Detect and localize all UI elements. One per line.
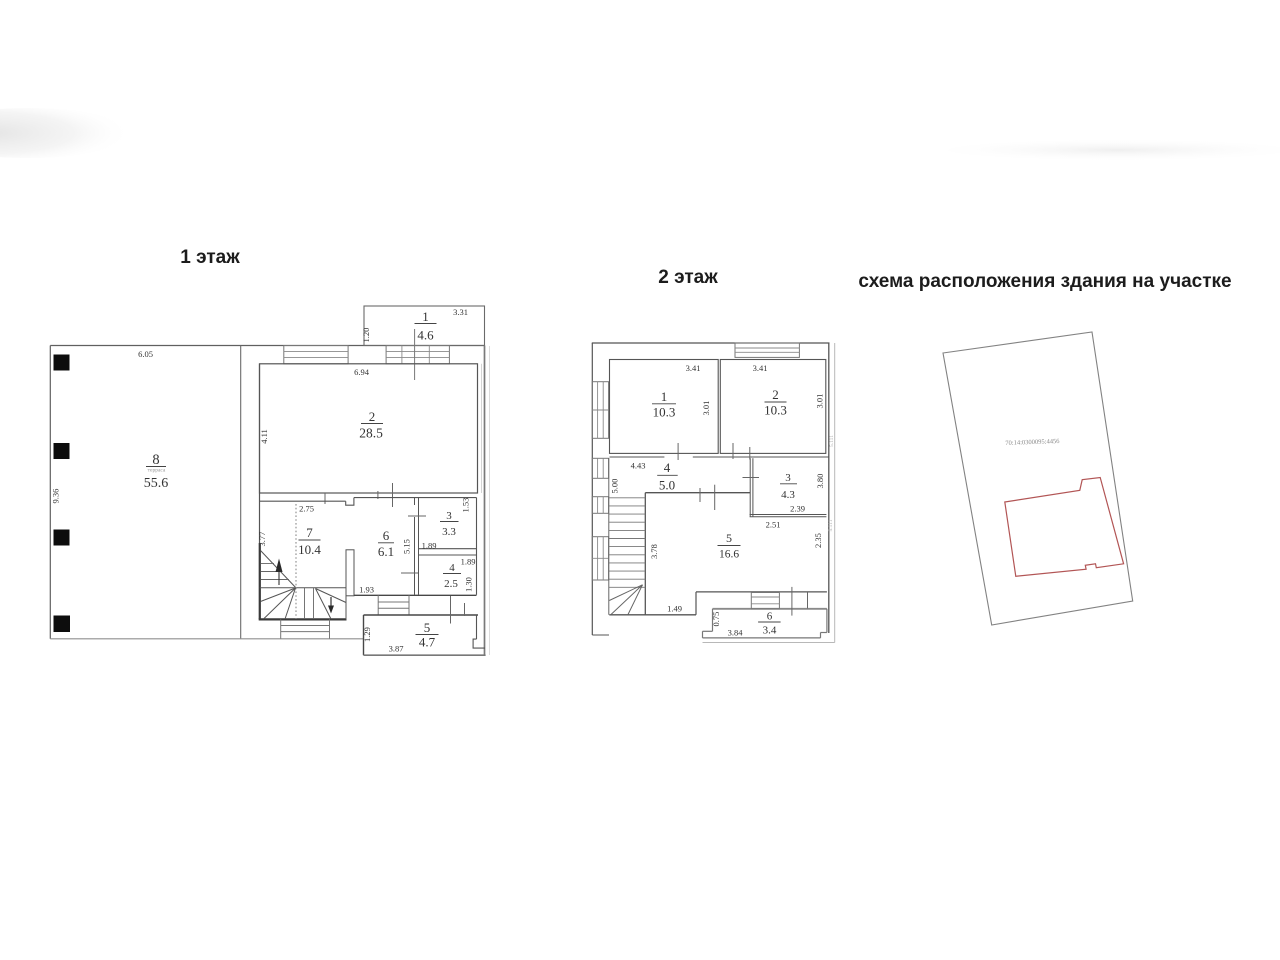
svg-text:2.39: 2.39 [790,504,805,514]
svg-text:1.30: 1.30 [464,577,474,592]
svg-text:1.20: 1.20 [361,328,371,343]
svg-text:1.53: 1.53 [461,498,471,513]
svg-text:3.3: 3.3 [442,526,456,538]
svg-text:1: 1 [422,309,429,324]
svg-text:1.29: 1.29 [362,627,372,642]
svg-text:3.84: 3.84 [728,628,744,638]
svg-text:1.89: 1.89 [461,557,476,567]
svg-text:6: 6 [383,528,390,543]
svg-text:6.1: 6.1 [378,544,394,559]
svg-text:2.35: 2.35 [813,533,823,548]
svg-text:3.41: 3.41 [686,363,701,373]
svg-text:3.87: 3.87 [389,644,404,654]
svg-text:3.31: 3.31 [453,307,468,317]
svg-text:4.43: 4.43 [631,461,646,471]
svg-text:схема расположения здания на у: схема расположения здания на участке [858,271,1231,292]
svg-text:3.41: 3.41 [753,363,768,373]
svg-text:0.75: 0.75 [711,612,721,627]
svg-text:5.111: 5.111 [829,435,835,447]
svg-text:2.51: 2.51 [766,520,781,530]
svg-text:10.3: 10.3 [764,403,787,418]
svg-text:1.89: 1.89 [422,541,437,551]
svg-text:55.6: 55.6 [144,476,169,491]
svg-text:4: 4 [664,460,671,475]
svg-text:7: 7 [306,525,313,540]
svg-text:3.77: 3.77 [257,532,267,547]
svg-text:3.01: 3.01 [815,394,825,409]
svg-text:1: 1 [661,389,668,404]
svg-text:3: 3 [785,472,791,484]
svg-text:2.5: 2.5 [444,578,458,590]
svg-text:8: 8 [152,452,159,468]
svg-text:10.4: 10.4 [298,542,321,557]
svg-text:4.11: 4.11 [259,429,269,444]
svg-text:16.6: 16.6 [719,549,739,561]
svg-text:6.05: 6.05 [138,349,153,359]
svg-text:3.01: 3.01 [701,401,711,416]
svg-text:6.94: 6.94 [354,367,370,377]
svg-text:6: 6 [767,611,773,623]
svg-text:4: 4 [449,562,455,574]
svg-text:28.5: 28.5 [359,426,383,441]
svg-text:5.00: 5.00 [610,479,620,494]
svg-text:5.0: 5.0 [659,478,675,493]
svg-text:1.93: 1.93 [359,585,374,595]
svg-text:5.111: 5.111 [828,519,834,531]
svg-text:9.36: 9.36 [51,489,61,504]
svg-text:2 этаж: 2 этаж [658,267,718,288]
svg-text:10.3: 10.3 [653,405,676,420]
svg-text:2: 2 [772,387,779,402]
svg-text:3.80: 3.80 [815,474,825,489]
svg-text:2.75: 2.75 [299,504,314,514]
svg-text:5.15: 5.15 [401,539,411,554]
svg-text:1.49: 1.49 [667,604,682,614]
svg-text:3.78: 3.78 [649,544,659,559]
svg-text:терраса: терраса [148,468,166,474]
svg-text:3: 3 [446,510,452,522]
svg-text:4.6: 4.6 [417,328,434,343]
svg-text:1 этаж: 1 этаж [180,247,240,268]
svg-text:4.3: 4.3 [781,489,795,501]
svg-text:5: 5 [424,620,431,635]
svg-text:2: 2 [369,409,376,424]
svg-text:5: 5 [726,531,732,545]
svg-text:4.7: 4.7 [419,635,436,650]
svg-text:3.4: 3.4 [763,625,777,637]
